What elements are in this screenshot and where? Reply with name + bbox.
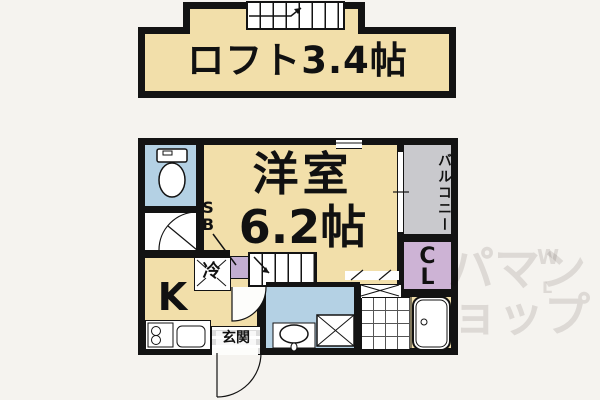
balcony-label: バルコニー (404, 150, 451, 235)
entrance-label: 玄関 (216, 331, 256, 346)
watermark-line2: ョップ (452, 292, 590, 338)
floor-plan: ロフト3.4帖 玄関 (0, 0, 600, 400)
vestibule (145, 213, 198, 252)
shoebox-label: S B (199, 199, 217, 233)
main-room-size: 6.2帖 (205, 203, 400, 251)
watermark-line1: パマン (448, 246, 586, 292)
watermark-sup: W (537, 247, 559, 267)
shoebox-label-line2: B (199, 216, 217, 233)
bath-tile-floor (362, 297, 410, 349)
fridge-label: 冷 (194, 263, 229, 282)
closet-label-line1: C (404, 246, 451, 267)
kitchen-label: K (150, 278, 195, 318)
loft-label: ロフト3.4帖 (145, 42, 450, 81)
closet-label-line2: L (404, 267, 451, 288)
entrance: 玄関 (211, 326, 261, 355)
loft-stairs-icon (246, 1, 345, 30)
washroom (266, 287, 354, 348)
toilet-room (145, 145, 198, 209)
kitchen-counter (145, 320, 211, 350)
entrance-door-arc (212, 348, 261, 397)
shoebox-label-line1: S (199, 199, 217, 216)
main-room-label: 洋室 (205, 150, 400, 198)
wall-below-balcony (397, 234, 458, 242)
closet-label: C L (404, 246, 451, 288)
